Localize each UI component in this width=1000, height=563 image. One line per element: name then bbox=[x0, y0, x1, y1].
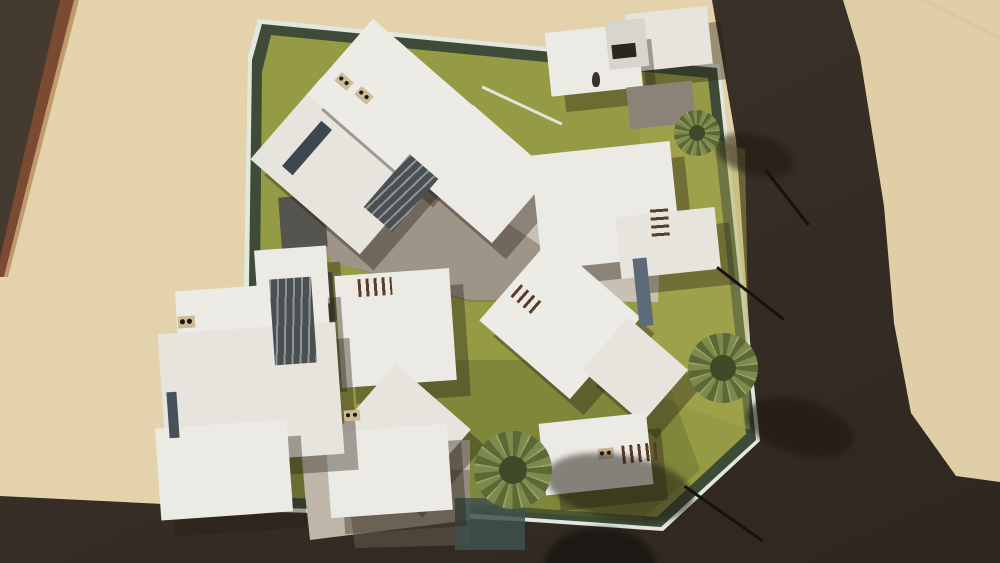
villa-bottomcenter-lower bbox=[325, 424, 453, 518]
render-canvas bbox=[0, 0, 1000, 563]
person-figure bbox=[592, 72, 600, 87]
villa-topright-stair-notch bbox=[611, 43, 636, 59]
palm-tree-bottom bbox=[474, 431, 552, 509]
palm-tree-topright bbox=[674, 110, 720, 156]
pergola-slats-1 bbox=[357, 277, 392, 297]
pergola-glass-roof-left bbox=[269, 277, 317, 366]
roof-chimney-3 bbox=[178, 315, 196, 328]
roof-chimney-4 bbox=[344, 409, 361, 421]
palm-tree-right bbox=[688, 333, 758, 403]
pergola-slats-3 bbox=[650, 208, 670, 239]
